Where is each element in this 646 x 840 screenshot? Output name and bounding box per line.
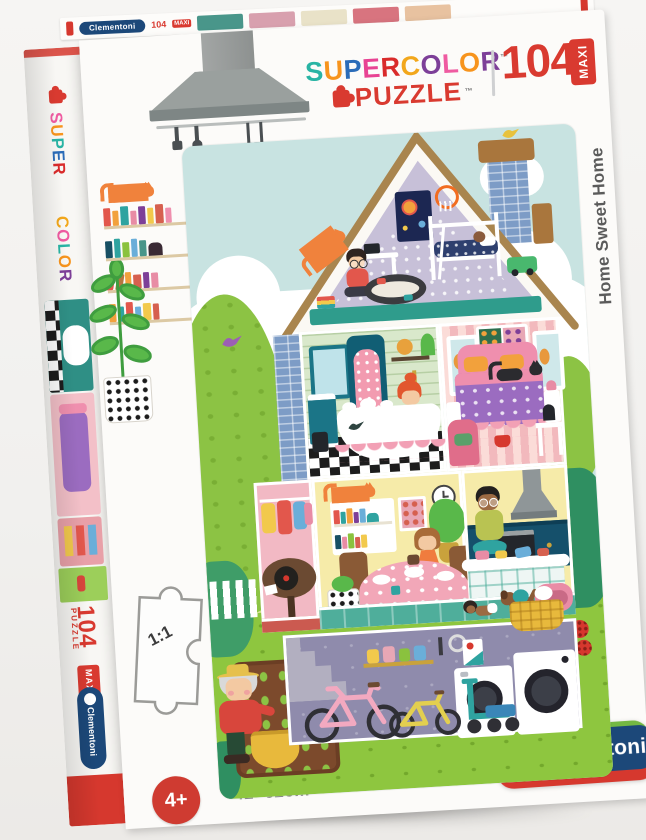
lamp: [546, 380, 557, 391]
detergent-box: [462, 639, 484, 666]
age-badge: 4+: [151, 775, 202, 826]
plate: [372, 574, 391, 585]
coat: [304, 503, 313, 525]
dryer: [513, 649, 580, 735]
teal-scooter: [459, 674, 522, 735]
laundry-basket: [509, 595, 565, 634]
top-strip-red-mark: [66, 21, 74, 35]
cat-on-bed: [496, 361, 537, 381]
bedroom-armchair: [447, 419, 480, 467]
living-bookshelf: [330, 498, 397, 556]
vanity-desk: [534, 404, 565, 460]
ladle-icon: [194, 126, 199, 142]
spine-supercolor-word2: COLOR: [51, 215, 75, 282]
kitchen-hood-graphic: [145, 27, 311, 142]
spatula-icon: [174, 127, 179, 143]
book-stack: [317, 296, 336, 309]
spine-red-band: [67, 773, 126, 826]
purple-bird: [219, 331, 246, 351]
cat-on-bookshelf: [331, 485, 370, 503]
toy-car: [377, 278, 386, 285]
potted-plant: [86, 259, 153, 384]
trademark-symbol: ™: [465, 86, 475, 96]
maxi-badge: MAXI: [569, 38, 597, 85]
kitchen-hood: [508, 468, 557, 521]
dryer-door: [523, 668, 570, 715]
puzzle-piece-icon: [332, 90, 350, 108]
pillow: [463, 356, 488, 372]
puzzle-box: Clementoni 104 MAXI SUPER COLOR: [23, 9, 646, 832]
box-front-face: SUPERCOLOR™ PUZZLE™ 104 MAXI Home Sweet …: [79, 9, 646, 829]
scale-puzzle-piece: 1:1: [120, 567, 213, 735]
bathroom-mirror: [309, 344, 352, 400]
bathroom-plant: [420, 333, 435, 356]
jar: [382, 646, 395, 663]
basement-shelf: [362, 640, 433, 670]
top-strip-artwork-thumb: [301, 8, 348, 25]
top-strip-brand-logo: Clementoni: [79, 19, 146, 35]
top-strip-maxi-badge: MAXI: [172, 19, 191, 28]
spine-supercolor-word1: SUPER: [45, 112, 69, 177]
fence: [209, 579, 265, 620]
food-item: [475, 550, 490, 560]
coat: [261, 503, 277, 534]
spine-artwork-garden: [58, 566, 108, 603]
bedroom: [438, 317, 567, 472]
dried-bouquet: [396, 338, 413, 355]
crawling-baby: [463, 599, 500, 621]
bathing-woman: [393, 378, 429, 414]
bathroom: [299, 324, 448, 480]
pieces-count: 104: [499, 31, 576, 89]
puzzle-piece-icon: [47, 88, 67, 106]
bunk-bed: [428, 212, 504, 280]
hanging-tool: [438, 637, 443, 655]
food-item: [537, 548, 549, 557]
bath-stool: [312, 432, 329, 453]
plate: [436, 570, 455, 581]
food-item: [495, 550, 507, 559]
cake: [407, 554, 420, 565]
plate: [404, 566, 425, 578]
toy-car: [404, 294, 413, 301]
top-strip-pieces-count: 104: [151, 19, 166, 30]
mug: [391, 586, 401, 596]
diaper: [487, 603, 498, 614]
top-strip-artwork-thumb: [197, 13, 244, 30]
jar: [413, 645, 426, 661]
bathroom-shelf: [391, 355, 429, 361]
coat: [277, 500, 293, 535]
bookshelf-row: [103, 199, 188, 230]
jar: [367, 649, 380, 664]
spine-artwork-bedroom: [50, 392, 101, 516]
bookshelf-row: [105, 230, 190, 261]
top-strip-artwork-thumb: [353, 6, 400, 23]
record-table: [261, 557, 317, 600]
red-bag: [494, 435, 511, 448]
entry-closet: [254, 480, 321, 633]
jar: [399, 648, 411, 662]
basketball-hoop: [434, 185, 456, 212]
spine-artwork-closet: [57, 516, 104, 567]
laundry-item: [534, 586, 553, 601]
dog-ear: [500, 590, 508, 599]
plant-pot: [103, 375, 154, 424]
top-strip-artwork-thumb: [249, 11, 296, 28]
toy-truck: [507, 256, 538, 274]
puzzle-artwork: [181, 123, 613, 799]
spine-artwork-bathroom: [44, 299, 93, 393]
spine-top-red-edge: [23, 47, 79, 58]
spine-brand-logo: Clementoni: [76, 686, 107, 769]
yellow-kids-bike: [384, 687, 465, 740]
product-photo: Clementoni 104 MAXI SUPER COLOR: [0, 0, 646, 840]
clementoni-c-icon: [84, 693, 97, 706]
black-bird: [346, 418, 367, 433]
